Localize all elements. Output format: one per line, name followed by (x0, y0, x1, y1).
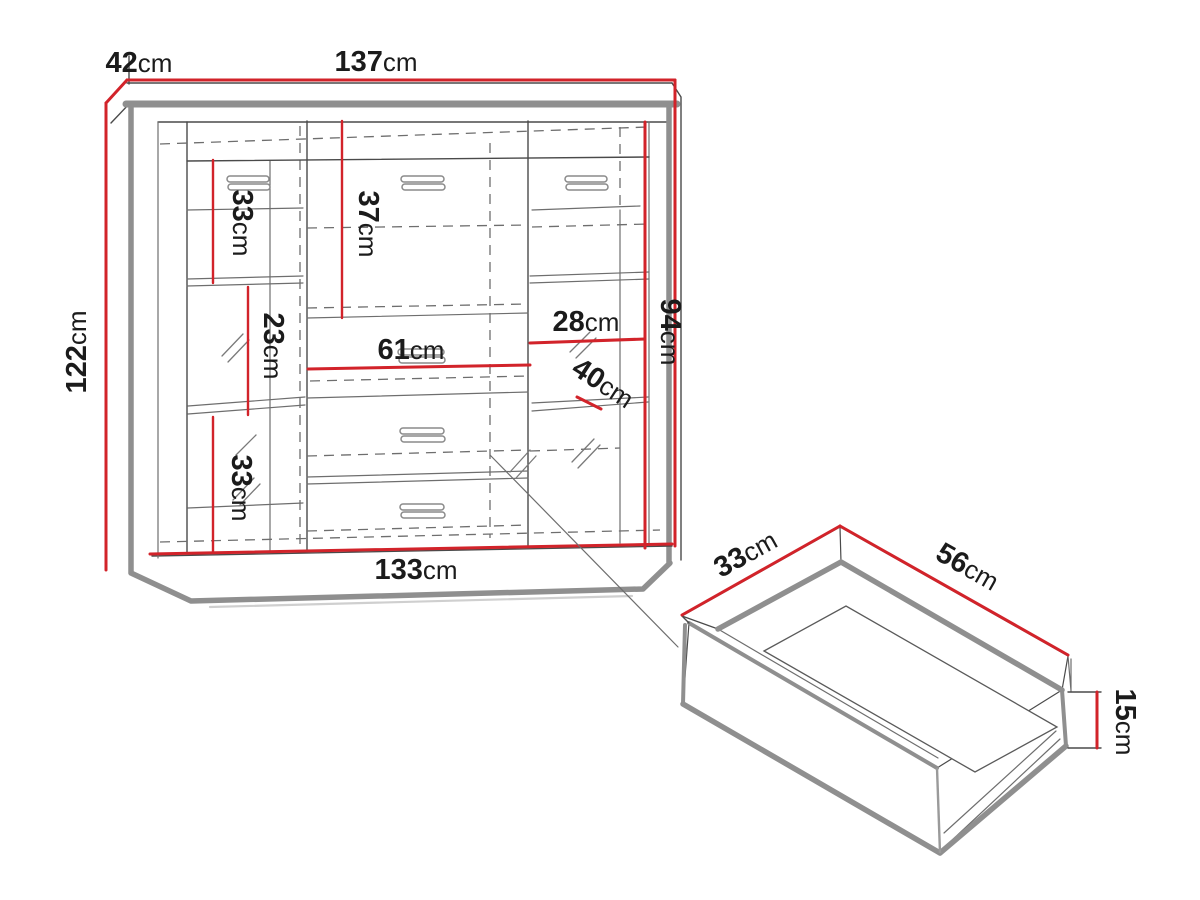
handle-icon (400, 428, 445, 442)
glass-hatch-icon (222, 334, 249, 362)
dim-depth-label: 42cm (106, 47, 173, 79)
middle-shelf-dash (307, 304, 528, 308)
handle-icon (401, 176, 445, 190)
handle-icon (400, 504, 445, 518)
middle-drawer-dash-1 (310, 376, 528, 381)
dim-line-mid-61 (308, 365, 530, 369)
dim-left-bottom-label: 33cm (225, 455, 257, 522)
drawer-back-right-sliver (1068, 656, 1071, 692)
left-shelf-33 (187, 276, 303, 286)
left-shelf-23 (188, 397, 305, 414)
interior-top-shelf-line (187, 157, 649, 161)
dim-drawer-height-label: 15cm (1109, 689, 1141, 756)
middle-shelf-line (307, 313, 528, 318)
dim-line-base-133 (150, 544, 672, 554)
dim-height-label: 122cm (61, 310, 93, 393)
hidden-bottom-dash (160, 530, 660, 542)
right-shelf-upper (530, 272, 649, 283)
middle-drawer-dash-3 (307, 525, 528, 531)
middle-shelf-slant (307, 392, 528, 398)
handle-icon (565, 176, 608, 190)
dim-base-width-label: 133cm (374, 554, 457, 586)
dim-width-label: 137cm (334, 46, 417, 78)
dim-line-right-28 (530, 339, 645, 343)
glass-hatch-icon (510, 439, 600, 478)
dim-mid-width-label: 61cm (378, 334, 445, 366)
dim-left-top-label: 33cm (226, 190, 258, 257)
handle-icon (227, 176, 270, 190)
callout-leader-line (490, 455, 678, 647)
dim-mid-top-label: 37cm (352, 191, 384, 258)
dim-right-width-label: 28cm (553, 306, 620, 338)
cabinet-front-view: 42cm 137cm 122cm 33cm 37cm 23cm 61cm 28c… (61, 46, 686, 607)
dim-line-depth-42 (106, 80, 127, 103)
dim-left-mid-label: 23cm (257, 313, 289, 380)
middle-drawer-divider (307, 471, 528, 484)
right-shelf-dash (530, 448, 620, 451)
drawer-front-left-edge (683, 625, 685, 704)
hidden-top-line (160, 127, 648, 144)
drawer-3d-view: 33cm 56cm 15cm (682, 524, 1141, 853)
middle-drawer-dash-2 (307, 450, 528, 456)
furniture-dimension-diagram: 42cm 137cm 122cm 33cm 37cm 23cm 61cm 28c… (0, 0, 1200, 900)
dim-right-height-label: 94cm (654, 299, 686, 366)
